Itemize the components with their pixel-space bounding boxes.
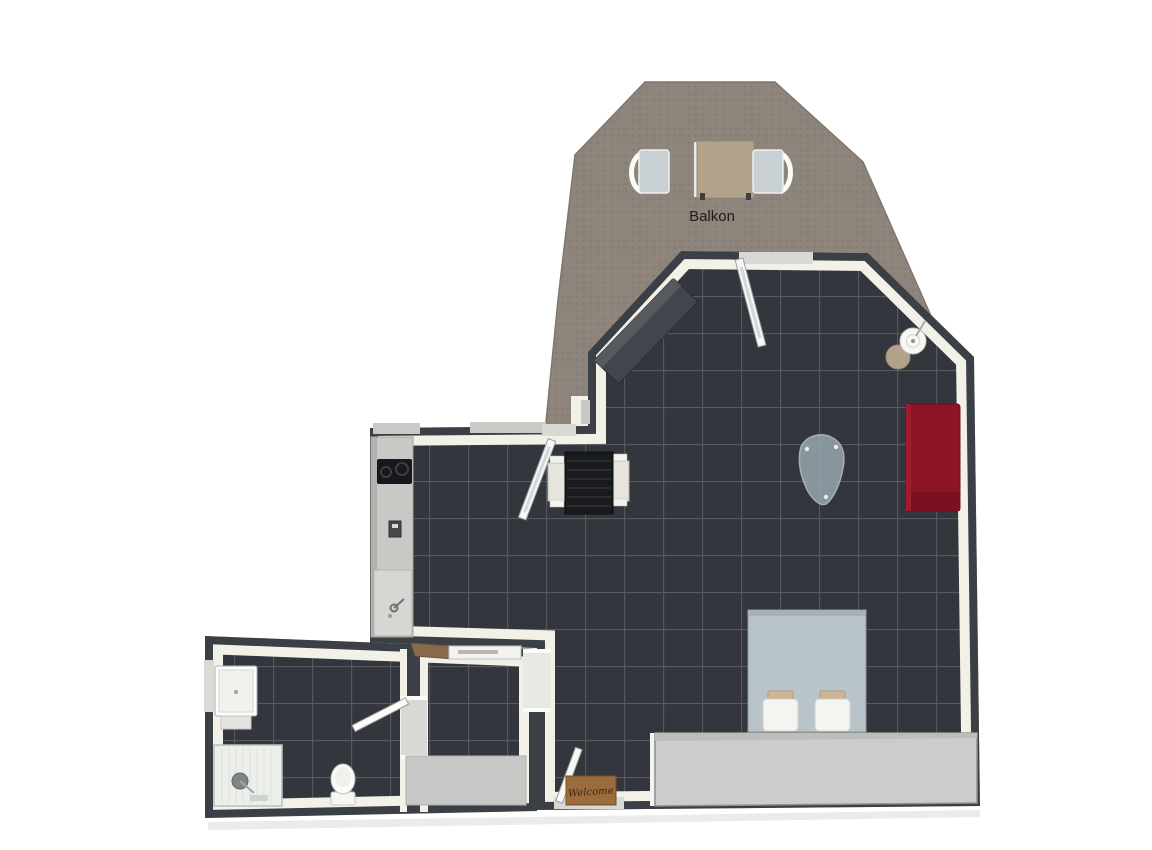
dining-table [565, 452, 613, 514]
kitchen-window-2 [470, 422, 546, 433]
balcony-table [694, 141, 754, 200]
table-leg [746, 193, 751, 200]
table-screw [824, 495, 828, 499]
kitchen-door-threshold [542, 424, 576, 436]
hall-doorway [523, 649, 551, 712]
appliance-detail [392, 524, 398, 528]
coat-shelf-detail [458, 650, 498, 654]
dining-chair-right [612, 454, 629, 506]
chair-arm [550, 500, 564, 507]
bed-pillow [763, 699, 798, 731]
bathroom-doorway [401, 699, 427, 757]
kitchen-window-1 [373, 423, 420, 434]
welcome-mat: Welcome [566, 776, 616, 805]
kitchen-appliance [389, 521, 401, 537]
closet [650, 733, 977, 806]
shower-fixture [250, 795, 268, 801]
balcony-label: Balkon [689, 208, 735, 225]
washbasin-pedestal [221, 716, 251, 729]
dining-set [548, 452, 629, 514]
table-leg [700, 193, 705, 200]
bed-foot [748, 610, 866, 616]
chair-seat [639, 150, 669, 193]
balcony-table-top [697, 141, 754, 198]
red-sofa-seat [906, 492, 960, 511]
bed-pillow [815, 699, 850, 731]
hall-doorway-floor [523, 652, 551, 710]
chair-seat [612, 461, 629, 501]
shower [214, 745, 282, 806]
bed [748, 610, 866, 732]
hall-rug [406, 756, 526, 805]
toilet-seat [335, 767, 351, 787]
bathroom-window [204, 660, 214, 712]
chair-seat [753, 150, 783, 193]
table-screw [834, 445, 838, 449]
kitchen-counter [371, 437, 413, 637]
cooktop [377, 459, 412, 484]
toilet [331, 764, 355, 805]
chair-arm [613, 454, 627, 461]
door-jamb [523, 649, 551, 653]
floor-plan-svg: Balkon [0, 0, 1152, 850]
red-sofa-arm [906, 404, 911, 511]
lamp-finial [911, 339, 915, 343]
door-jamb [523, 708, 551, 712]
closet-body [655, 733, 977, 806]
red-sofa [906, 404, 960, 511]
coat-shelf-wood [411, 643, 453, 659]
floor-plan-canvas: Balkon [0, 0, 1152, 850]
chair-seat [548, 463, 565, 501]
living-window-left [581, 400, 590, 424]
dining-chair-left [548, 456, 565, 507]
balcony-door-threshold [739, 252, 813, 264]
sink-detail [388, 614, 392, 618]
chair-arm [613, 499, 627, 506]
kitchen-sink [374, 570, 412, 636]
sink-basin [374, 570, 412, 636]
table-screw [805, 447, 809, 451]
chair-arm [550, 456, 564, 463]
washbasin-drain [234, 690, 238, 694]
shower-tray [214, 745, 282, 806]
washbasin [215, 666, 257, 729]
